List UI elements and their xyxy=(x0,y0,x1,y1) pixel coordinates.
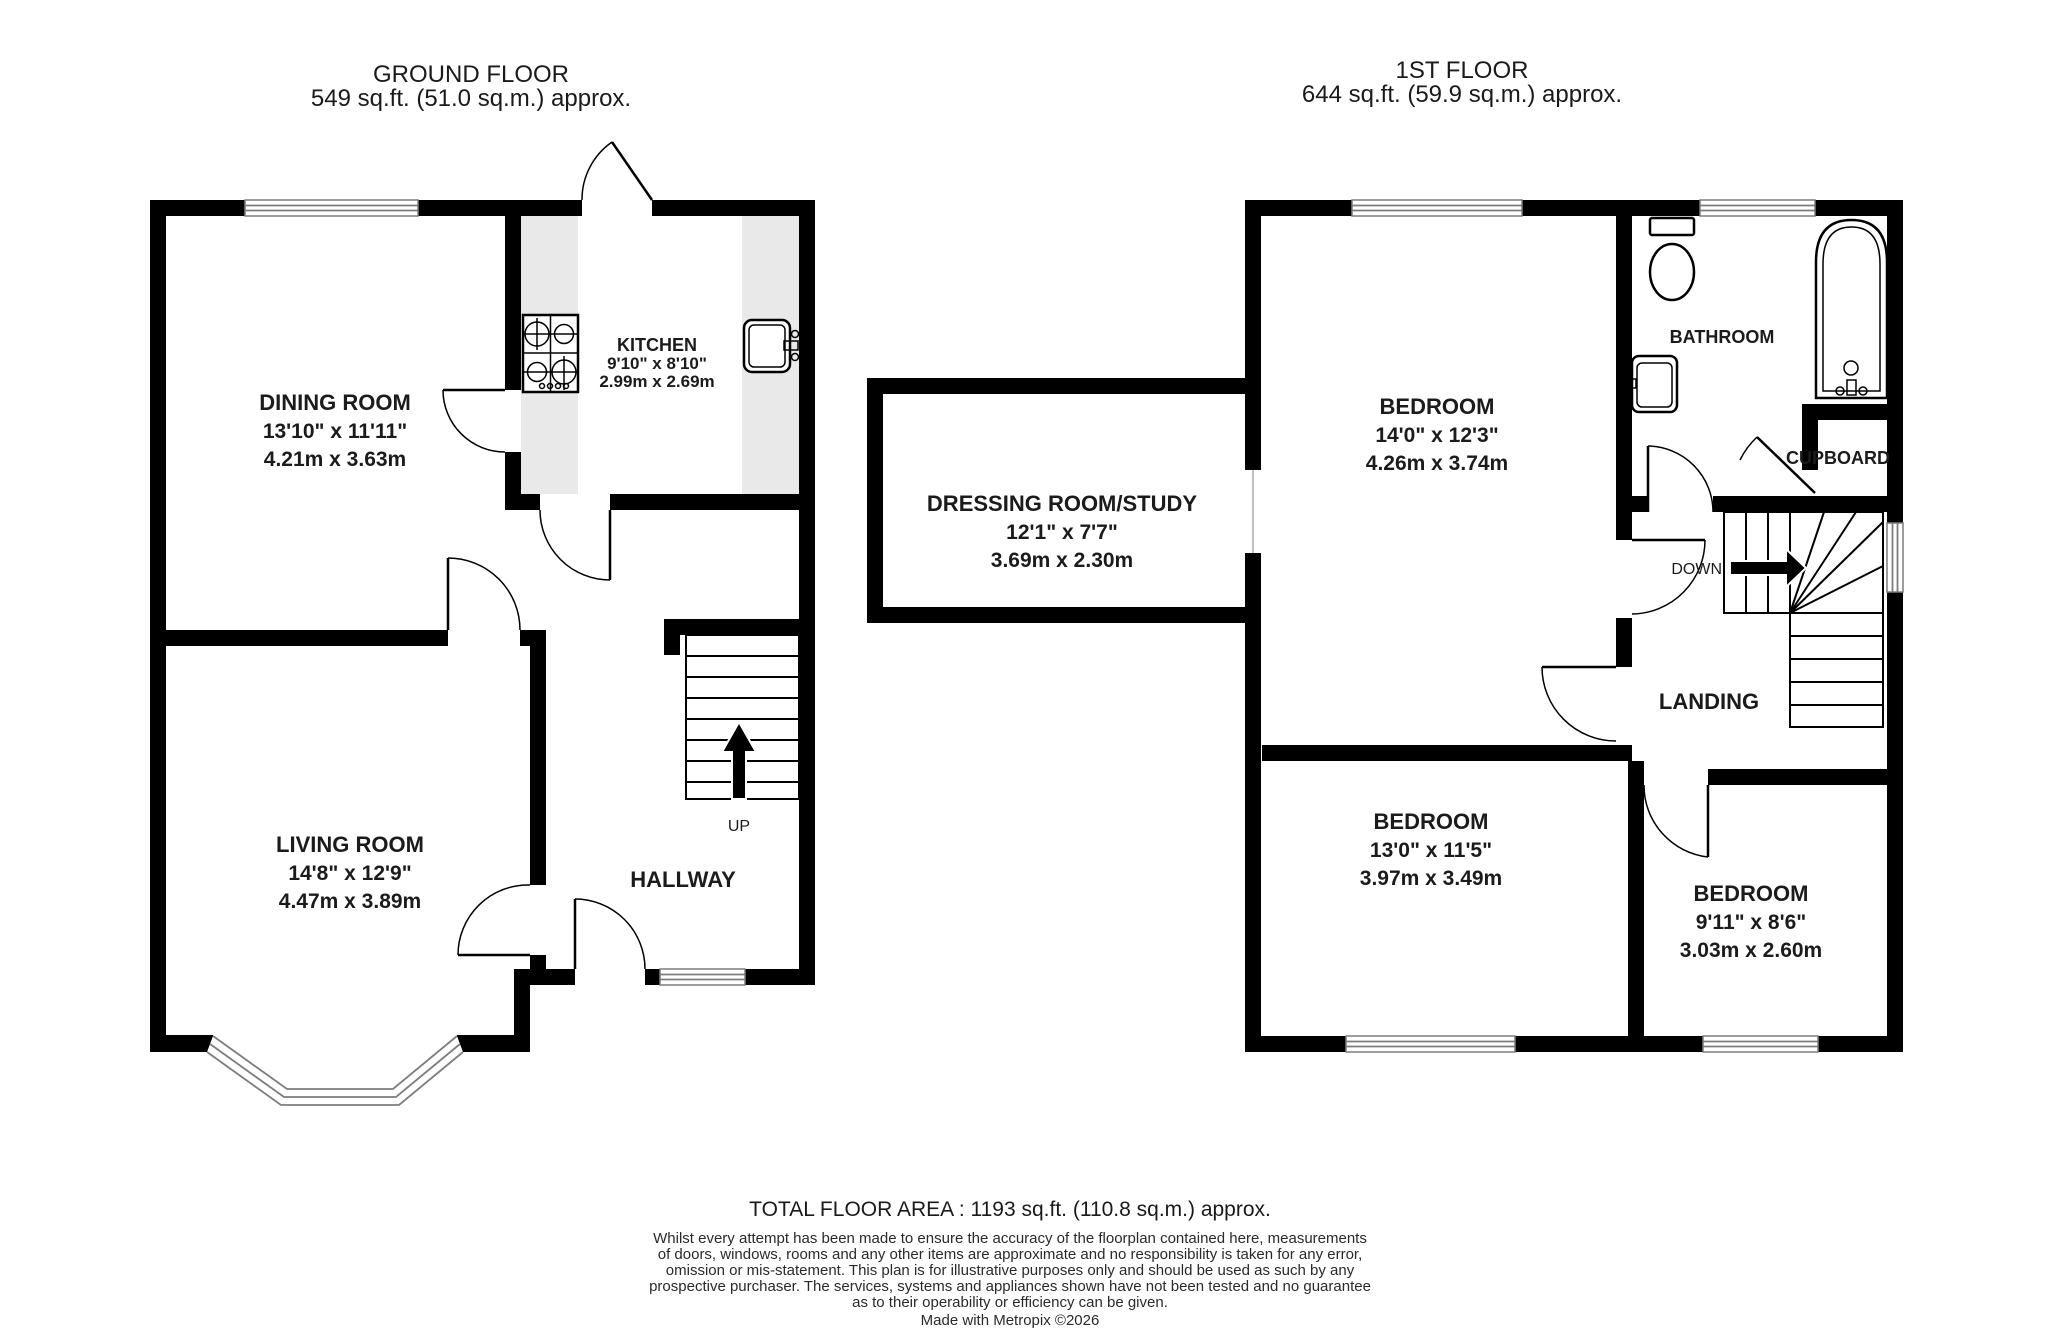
toilet-icon xyxy=(1650,218,1694,300)
floorplan-page: GROUND FLOOR 549 sq.ft. (51.0 sq.m.) app… xyxy=(0,0,2048,1335)
bedroom2-window xyxy=(1346,1036,1515,1052)
bay-window xyxy=(207,1036,463,1105)
total-floor-area: TOTAL FLOOR AREA : 1193 sq.ft. (110.8 sq… xyxy=(749,1198,1271,1221)
first-floor-title: 1ST FLOOR xyxy=(1396,57,1529,84)
disclaimer-line-2: of doors, windows, rooms and any other i… xyxy=(658,1246,1363,1263)
dining-room-dims-imperial: 13'10" x 11'11" xyxy=(263,420,407,443)
disclaimer-line-4: prospective purchaser. The services, sys… xyxy=(649,1278,1371,1295)
kitchen-sink-icon xyxy=(744,320,799,372)
bathroom-sink-icon xyxy=(1624,356,1677,412)
kitchen-dims-imperial: 9'10" x 8'10" xyxy=(607,354,707,373)
bathroom-window xyxy=(1700,200,1815,216)
disclaimer-line-3: omission or mis-statement. This plan is … xyxy=(666,1262,1355,1279)
living-room-label: LIVING ROOM xyxy=(276,832,424,857)
first-floor-area: 644 sq.ft. (59.9 sq.m.) approx. xyxy=(1302,81,1622,108)
dining-room-label: DINING ROOM xyxy=(259,390,411,415)
disclaimer-line-1: Whilst every attempt has been made to en… xyxy=(653,1230,1367,1247)
first-floor-plan: BEDROOM 14'0" x 12'3" 4.26m x 3.74m BATH… xyxy=(867,200,1903,1052)
bathtub-icon xyxy=(1816,220,1887,398)
kitchen-dims-metric: 2.99m x 2.69m xyxy=(599,372,714,391)
stairs-up xyxy=(686,635,799,799)
hallway-front-window xyxy=(660,969,745,985)
hallway-label: HALLWAY xyxy=(630,867,736,892)
stairs-window xyxy=(1887,523,1903,592)
dressing-room-label: DRESSING ROOM/STUDY xyxy=(927,491,1197,516)
floorplan-canvas: GROUND FLOOR 549 sq.ft. (51.0 sq.m.) app… xyxy=(0,0,2048,1335)
dressing-room-dims-imperial: 12'1" x 7'7" xyxy=(1006,521,1118,544)
ground-floor-plan: DINING ROOM 13'10" x 11'11" 4.21m x 3.63… xyxy=(150,142,815,1105)
bathroom-label: BATHROOM xyxy=(1670,327,1775,347)
bedroom2-label: BEDROOM xyxy=(1374,809,1489,834)
dining-kitchen-door xyxy=(443,390,505,452)
bedroom2-dims-metric: 3.97m x 3.49m xyxy=(1360,867,1502,890)
first-interior-walls xyxy=(1262,216,1903,1036)
hob-icon xyxy=(523,315,578,392)
bedroom2-door xyxy=(1542,667,1616,741)
bedroom1-dims-metric: 4.26m x 3.74m xyxy=(1366,452,1508,475)
cupboard-label: CUPBOARD xyxy=(1786,448,1890,468)
bedroom3-label: BEDROOM xyxy=(1694,881,1809,906)
bedroom1-window xyxy=(1352,200,1522,216)
living-room-dims-metric: 4.47m x 3.89m xyxy=(279,890,421,913)
living-room-dims-imperial: 14'8" x 12'9" xyxy=(288,862,411,885)
kitchen-door xyxy=(540,510,610,580)
bedroom3-window xyxy=(1703,1036,1818,1052)
ground-floor-title: GROUND FLOOR xyxy=(373,61,569,88)
up-label: UP xyxy=(728,818,750,835)
bedroom3-dims-imperial: 9'11" x 8'6" xyxy=(1696,911,1807,934)
back-door xyxy=(582,142,652,200)
dining-room-dims-metric: 4.21m x 3.63m xyxy=(264,448,406,471)
bedroom1-label: BEDROOM xyxy=(1380,394,1495,419)
footer: TOTAL FLOOR AREA : 1193 sq.ft. (110.8 sq… xyxy=(649,1198,1371,1329)
landing-label: LANDING xyxy=(1659,689,1759,714)
dining-door xyxy=(448,558,520,630)
bedroom3-dims-metric: 3.03m x 2.60m xyxy=(1680,939,1822,962)
living-room-door xyxy=(458,885,530,955)
down-label: DOWN xyxy=(1671,561,1722,578)
bedroom1-dims-imperial: 14'0" x 12'3" xyxy=(1375,424,1498,447)
metropix-credit: Made with Metropix ©2026 xyxy=(921,1312,1100,1329)
bedroom3-door xyxy=(1644,785,1708,857)
front-door xyxy=(575,899,645,969)
dressing-room-dims-metric: 3.69m x 2.30m xyxy=(991,549,1133,572)
bedroom2-dims-imperial: 13'0" x 11'5" xyxy=(1370,839,1492,862)
dining-window xyxy=(245,200,418,216)
ground-floor-area: 549 sq.ft. (51.0 sq.m.) approx. xyxy=(311,85,631,112)
bathroom-door xyxy=(1648,446,1713,512)
disclaimer-line-5: as to their operability or efficiency ca… xyxy=(852,1294,1168,1311)
kitchen-label: KITCHEN xyxy=(617,335,697,355)
